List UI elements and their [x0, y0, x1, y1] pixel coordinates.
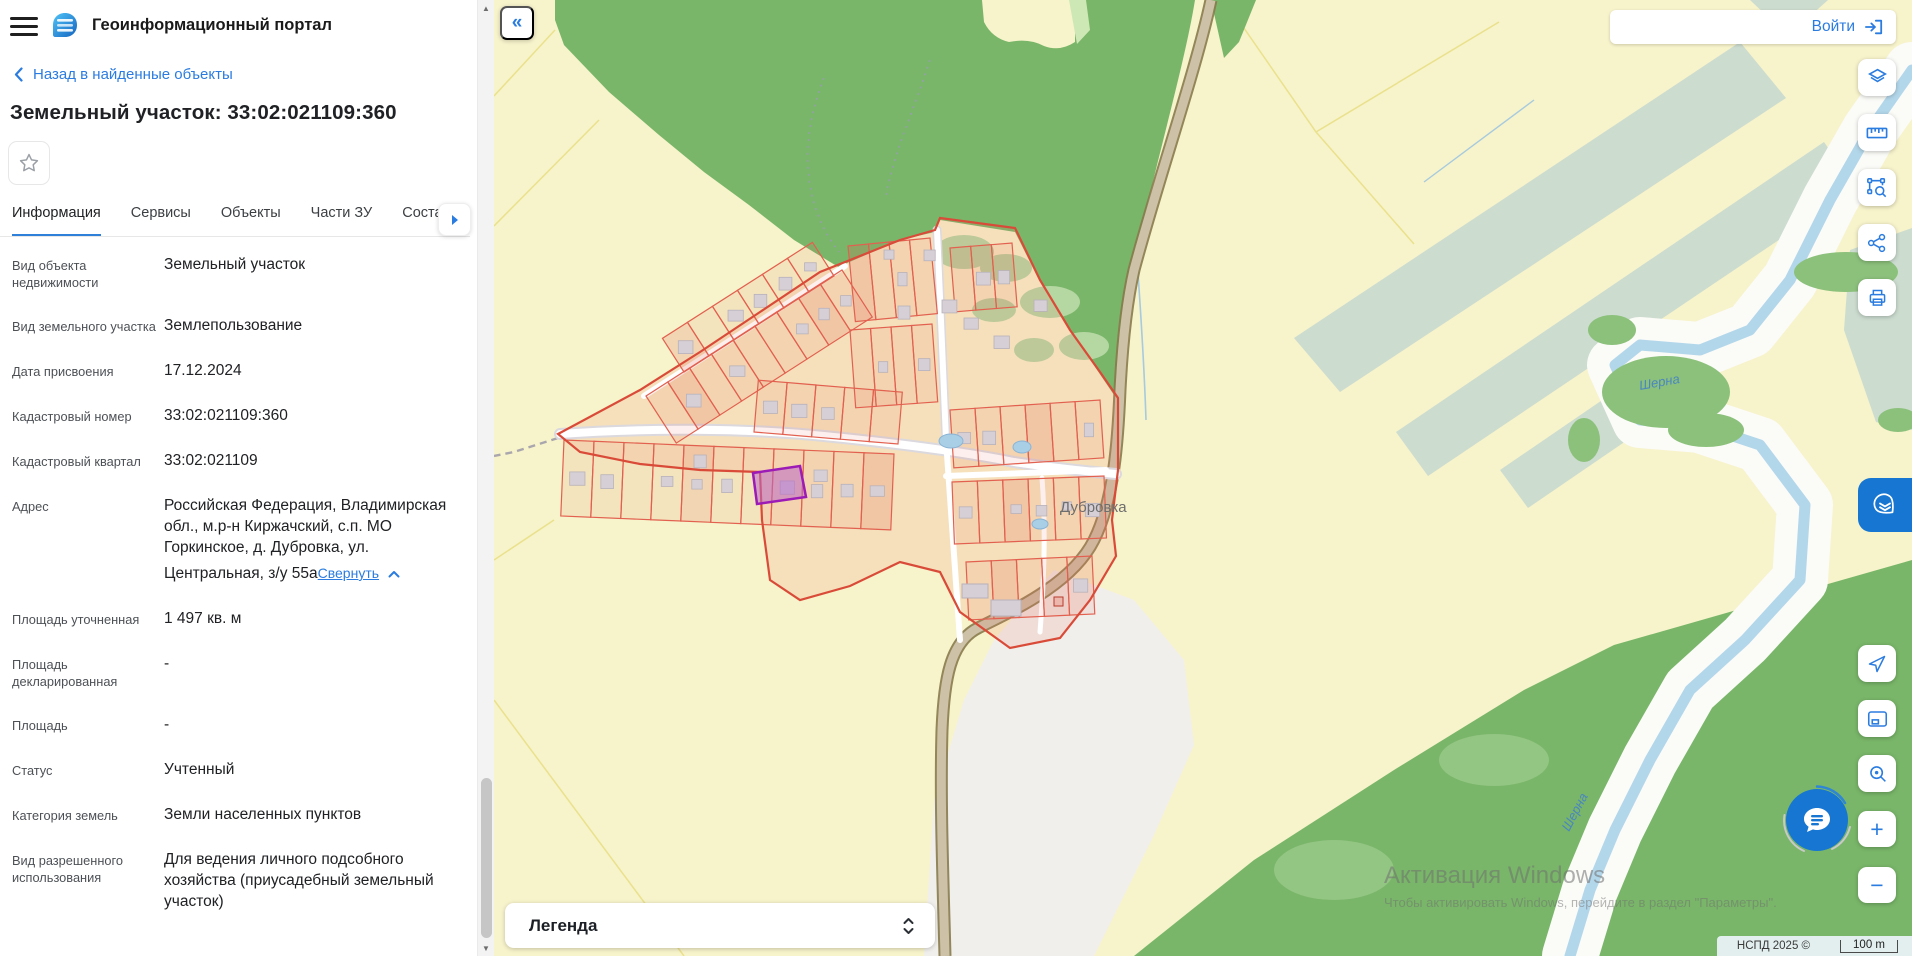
field-label: Вид разрешенного использования: [12, 849, 164, 912]
building: [998, 271, 1009, 284]
minimap-icon: [1867, 710, 1888, 728]
field-row-2: Вид земельного участкаЗемлепользование: [12, 315, 457, 336]
back-link[interactable]: Назад в найденные объекты: [14, 66, 477, 83]
collapse-link-label: Свернуть: [318, 563, 379, 584]
village-label: Дубровка: [1060, 499, 1127, 516]
field-value: -: [164, 714, 169, 735]
building: [692, 480, 702, 490]
search-coordinates-button[interactable]: [1858, 755, 1896, 792]
field-row-3: Дата присвоения17.12.2024: [12, 360, 457, 381]
field-label: Дата присвоения: [12, 360, 164, 381]
field-row-6: АдресРоссийская Федерация, Владимирская …: [12, 495, 457, 584]
layers-icon: [1867, 67, 1888, 88]
login-label: Войти: [1812, 18, 1855, 36]
minus-icon: −: [1870, 874, 1883, 897]
share-icon: [1867, 233, 1887, 253]
field-label: Площадь декларированная: [12, 653, 164, 690]
page-title: Земельный участок: 33:02:021109:360: [10, 101, 477, 125]
building: [811, 485, 822, 498]
field-label: Вид объекта недвижимости: [12, 254, 164, 291]
building: [570, 472, 585, 485]
selected-parcel[interactable]: [753, 466, 806, 504]
building: [686, 394, 701, 407]
building: [805, 263, 817, 271]
zoom-out-button[interactable]: −: [1858, 867, 1896, 903]
chevron-right-icon: [450, 214, 460, 226]
measure-button[interactable]: [1858, 114, 1896, 151]
scale-bar: 100 m: [1840, 940, 1898, 953]
building: [661, 476, 673, 486]
parcel[interactable]: [1042, 557, 1070, 616]
chevron-up-icon: [388, 570, 400, 578]
field-label: Вид земельного участка: [12, 315, 164, 336]
address-collapse-link[interactable]: Свернуть: [318, 563, 400, 584]
building: [870, 486, 884, 497]
field-row-11: Категория земельЗемли населенных пунктов: [12, 804, 457, 825]
building: [976, 272, 990, 285]
legend-bar[interactable]: Легенда: [505, 903, 935, 948]
field-row-7: Площадь уточненная1 497 кв. м: [12, 608, 457, 629]
building: [1011, 505, 1021, 514]
building: [779, 277, 792, 290]
tab-4[interactable]: Части ЗУ: [311, 203, 373, 237]
layers-button[interactable]: [1858, 59, 1896, 96]
login-icon: [1864, 18, 1884, 36]
building: [964, 318, 978, 329]
expand-collapse-icon: [902, 917, 915, 935]
field-value: Учтенный: [164, 759, 234, 780]
tab-2[interactable]: Сервисы: [131, 203, 191, 237]
field-value: -: [164, 653, 169, 690]
map-pin-layers-icon: [1870, 490, 1900, 520]
building: [924, 250, 935, 261]
info-panel: Геоинформационный портал Назад в найденн…: [0, 0, 477, 956]
parcel[interactable]: [1050, 402, 1079, 462]
printer-icon: [1867, 288, 1888, 308]
field-value: 17.12.2024: [164, 360, 242, 381]
portal-logo-icon: [52, 12, 78, 38]
field-row-12: Вид разрешенного использованияДля ведени…: [12, 849, 457, 912]
chat-button[interactable]: [1782, 785, 1852, 855]
building: [884, 250, 894, 259]
building: [898, 273, 907, 286]
building: [728, 310, 743, 321]
building: [1084, 423, 1093, 437]
favorite-button[interactable]: [8, 141, 50, 185]
tabs: ИнформацияСервисыОбъектыЧасти ЗУСостав: [0, 203, 470, 237]
parcel[interactable]: [1000, 405, 1029, 465]
field-value: Для ведения личного подсобного хозяйства…: [164, 849, 457, 912]
field-label: Статус: [12, 759, 164, 780]
building: [942, 300, 957, 313]
field-value: 1 497 кв. м: [164, 608, 241, 629]
field-value: Землепользование: [164, 315, 302, 336]
field-label: Адрес: [12, 495, 164, 584]
plus-icon: +: [1870, 818, 1883, 841]
building: [898, 306, 910, 319]
map-attribution-bar: НСПД 2025 © 100 m: [1717, 936, 1912, 956]
scrollbar-down-arrow[interactable]: ▼: [478, 940, 494, 956]
building: [1034, 300, 1047, 311]
login-button[interactable]: Войти: [1610, 10, 1896, 44]
share-button[interactable]: [1858, 224, 1896, 261]
building: [959, 507, 972, 518]
field-value: Российская Федерация, Владимирская обл.,…: [164, 495, 457, 584]
building: [1036, 505, 1047, 516]
building: [841, 296, 852, 306]
area-search-button[interactable]: [1858, 169, 1896, 206]
building: [814, 470, 827, 482]
map-style-button[interactable]: [1858, 478, 1912, 532]
app-title: Геоинформационный портал: [92, 16, 332, 35]
tabs-scroll-right-button[interactable]: [438, 203, 471, 236]
building: [601, 475, 614, 489]
field-value: Земельный участок: [164, 254, 305, 291]
building: [822, 408, 835, 420]
building: [754, 294, 767, 307]
tab-1[interactable]: Информация: [12, 203, 101, 237]
field-row-9: Площадь-: [12, 714, 457, 735]
parcel[interactable]: [621, 443, 654, 520]
minimap-button[interactable]: [1858, 700, 1896, 737]
basemap: Дубровка Шерна Шерна: [494, 0, 1912, 956]
field-row-5: Кадастровый квартал33:02:021109: [12, 450, 457, 471]
field-value: 33:02:021109: [164, 450, 258, 471]
attribution-text: НСПД 2025 ©: [1737, 940, 1810, 952]
scrollbar-up-arrow[interactable]: ▲: [478, 0, 494, 16]
collapse-panel-button[interactable]: «: [500, 6, 534, 40]
building: [763, 401, 777, 413]
field-row-4: Кадастровый номер33:02:021109:360: [12, 405, 457, 426]
field-row-8: Площадь декларированная-: [12, 653, 457, 690]
panel-header: Геоинформационный портал: [0, 0, 477, 38]
tabs-bar: ИнформацияСервисыОбъектыЧасти ЗУСостав: [0, 203, 477, 237]
ruler-icon: [1866, 125, 1888, 141]
area-search-icon: [1866, 177, 1888, 199]
scrollbar-thumb[interactable]: [481, 778, 492, 938]
building: [879, 362, 888, 373]
legend-label: Легенда: [529, 916, 597, 936]
attributes-list: Вид объекта недвижимостиЗемельный участо…: [0, 237, 477, 912]
search-location-icon: [1867, 763, 1888, 784]
parcel[interactable]: [1025, 403, 1054, 463]
chat-circle: [1786, 789, 1848, 851]
building: [792, 404, 807, 417]
building: [722, 479, 733, 492]
building: [730, 366, 745, 377]
field-label: Категория земель: [12, 804, 164, 825]
building: [841, 484, 853, 497]
locate-arrow-icon: [1867, 654, 1887, 674]
building: [819, 308, 829, 319]
building: [678, 341, 693, 354]
tab-3[interactable]: Объекты: [221, 203, 281, 237]
building: [983, 431, 996, 444]
star-icon: [18, 152, 40, 174]
parcel[interactable]: [977, 480, 1005, 543]
building: [694, 455, 706, 468]
zoom-in-button[interactable]: +: [1858, 811, 1896, 847]
building: [797, 324, 809, 334]
back-link-label: Назад в найденные объекты: [33, 66, 233, 83]
field-value: Земли населенных пунктов: [164, 804, 361, 825]
chat-bubble-icon: [1802, 806, 1832, 834]
field-label: Кадастровый номер: [12, 405, 164, 426]
panel-scrollbar[interactable]: ▲ ▼: [477, 0, 494, 956]
menu-icon[interactable]: [10, 15, 38, 36]
field-label: Кадастровый квартал: [12, 450, 164, 471]
field-label: Площадь уточненная: [12, 608, 164, 629]
map-canvas[interactable]: Дубровка Шерна Шерна « Войти: [494, 0, 1912, 956]
field-row-10: СтатусУчтенный: [12, 759, 457, 780]
field-label: Площадь: [12, 714, 164, 735]
geolocation-button[interactable]: [1858, 645, 1896, 682]
print-button[interactable]: [1858, 279, 1896, 316]
building: [919, 359, 930, 371]
building: [994, 336, 1009, 349]
back-chevron-icon: [14, 67, 23, 82]
field-row-1: Вид объекта недвижимостиЗемельный участо…: [12, 254, 457, 291]
field-value: 33:02:021109:360: [164, 405, 288, 426]
building: [1074, 579, 1088, 592]
